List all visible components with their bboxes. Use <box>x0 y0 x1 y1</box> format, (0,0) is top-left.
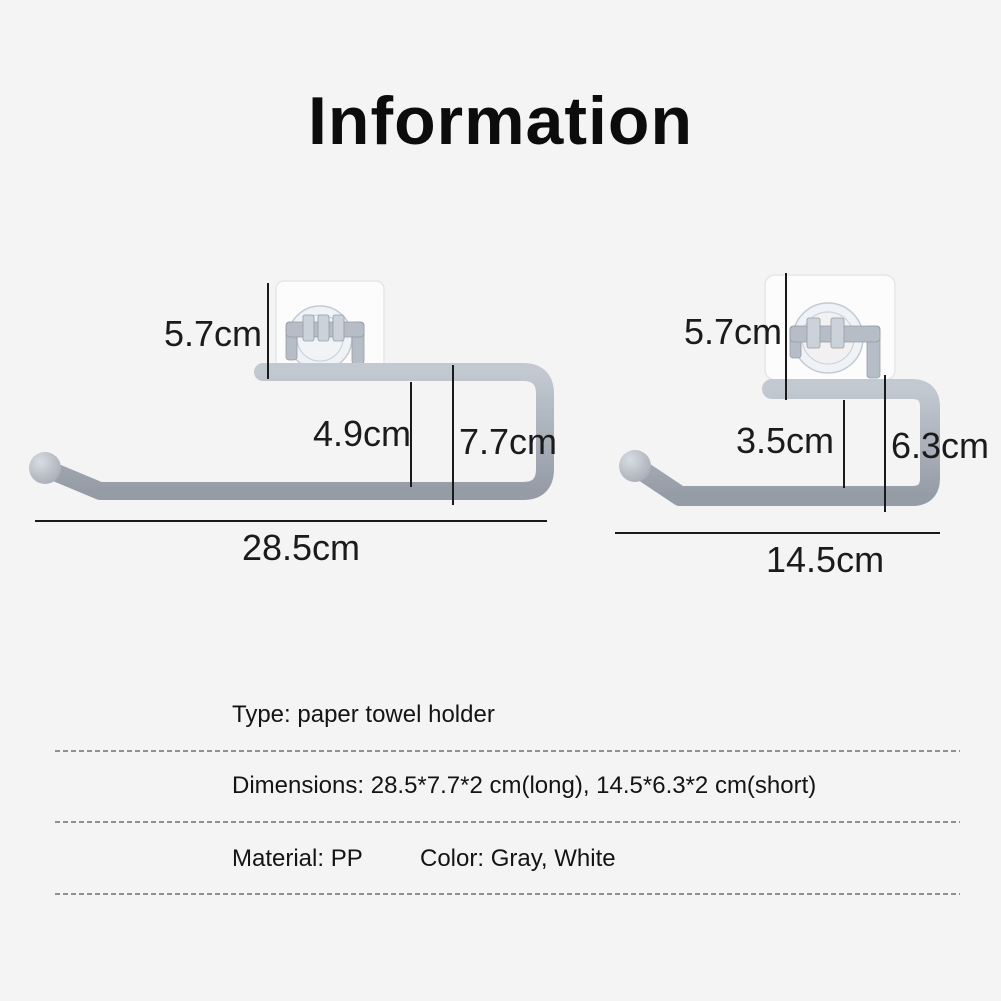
spec-type: Type: paper towel holder <box>232 701 495 729</box>
dim-label-long-width: 28.5cm <box>181 528 421 568</box>
dashed-divider <box>55 893 960 895</box>
page-title: Information <box>0 82 1001 160</box>
spec-material: Material: PP <box>232 845 363 873</box>
bar-end-ball <box>29 452 61 484</box>
dim-label-long-top-height: 5.7cm <box>110 314 262 354</box>
hinge-clip <box>303 315 314 341</box>
dim-label-long-inner-height: 4.9cm <box>313 414 411 454</box>
dashed-divider <box>55 750 960 752</box>
dashed-divider <box>55 821 960 823</box>
spec-dimensions: Dimensions: 28.5*7.7*2 cm(long), 14.5*6.… <box>232 772 816 800</box>
hinge-clip <box>333 315 344 341</box>
dim-label-short-top-height: 5.7cm <box>630 312 782 352</box>
hinge-clip <box>807 318 820 348</box>
hinge-clip <box>318 315 329 341</box>
spec-color: Color: Gray, White <box>420 845 616 873</box>
dim-label-short-width: 14.5cm <box>766 540 884 580</box>
hinge-clip <box>831 318 844 348</box>
product-info-page: Information <box>0 0 1001 1001</box>
dim-label-short-inner-height: 3.5cm <box>736 421 834 461</box>
dim-label-long-side-height: 7.7cm <box>459 422 557 462</box>
dim-label-short-side-height: 6.3cm <box>891 426 989 466</box>
bar-end-ball <box>619 450 651 482</box>
